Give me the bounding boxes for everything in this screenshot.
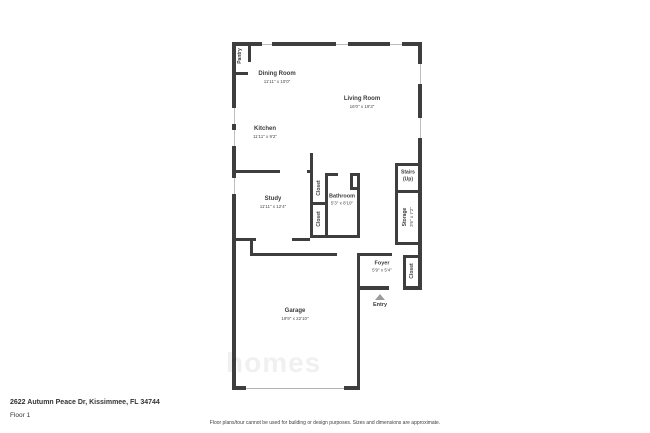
- wall-segment: [418, 138, 422, 290]
- wall-segment: [328, 173, 338, 176]
- floor-label: Floor 1: [10, 412, 30, 419]
- room-name: Pantry: [237, 48, 244, 64]
- room-label-storage: Storage 3'6" x 7'2": [402, 207, 414, 227]
- entry-label: Entry: [373, 302, 387, 308]
- room-name: Closet: [316, 211, 323, 226]
- room-name: Foyer: [372, 261, 392, 268]
- wall-segment: [232, 238, 256, 241]
- entry-arrow-icon: [375, 294, 385, 300]
- room-name: Study: [260, 196, 287, 204]
- window-marker: [234, 130, 235, 146]
- wall-segment: [348, 42, 390, 46]
- room-label-stairs: Stairs (Up): [401, 170, 415, 183]
- room-label-foyer: Foyer 5'9" x 5'4": [372, 261, 392, 274]
- room-label-dining-room: Dining Room 11'11" x 10'0": [258, 71, 295, 85]
- room-dims: 19'9" x 22'10": [281, 316, 308, 322]
- wall-segment: [395, 163, 398, 245]
- room-label-living-room: Living Room 16'0" x 19'3": [344, 96, 380, 110]
- room-label-study: Study 11'11" x 12'4": [260, 196, 287, 210]
- room-sub: (Up): [401, 176, 415, 183]
- wall-segment: [310, 235, 360, 238]
- window-marker: [390, 44, 402, 45]
- window-marker: [234, 108, 235, 124]
- wall-segment: [357, 286, 389, 290]
- wall-segment: [418, 84, 422, 118]
- wall-segment: [232, 386, 246, 390]
- window-marker: [420, 118, 421, 138]
- room-label-closet-foyer: Closet: [409, 263, 416, 278]
- room-dims: 16'0" x 19'3": [344, 104, 380, 110]
- room-dims: 11'11" x 9'2": [253, 134, 277, 140]
- wall-segment: [395, 163, 422, 166]
- wall-segment: [357, 253, 392, 256]
- room-name: Closet: [316, 180, 323, 195]
- room-name: Closet: [409, 263, 416, 278]
- wall-segment: [418, 42, 422, 64]
- room-label-garage: Garage 19'9" x 22'10": [281, 308, 308, 322]
- property-address: 2622 Autumn Peace Dr, Kissimmee, FL 3474…: [10, 399, 160, 406]
- garage-door-line: [246, 388, 344, 389]
- room-dims: 3'6" x 7'2": [408, 207, 414, 227]
- window-marker: [336, 44, 348, 45]
- disclaimer-text: Floor plans/tour cannot be used for buil…: [0, 420, 650, 426]
- wall-segment: [395, 242, 421, 245]
- window-marker: [234, 178, 235, 194]
- room-label-kitchen: Kitchen 11'11" x 9'2": [253, 126, 277, 140]
- room-label-closet-lower: Closet: [316, 211, 323, 226]
- wall-segment: [232, 170, 280, 173]
- wall-segment: [357, 253, 360, 390]
- wall-segment: [357, 173, 360, 235]
- wall-segment: [404, 286, 422, 290]
- room-dims: 5'9" x 5'4": [372, 268, 392, 274]
- wall-segment: [232, 42, 236, 108]
- room-name: Dining Room: [258, 71, 295, 79]
- room-name: Garage: [281, 308, 308, 316]
- room-name: Kitchen: [253, 126, 277, 134]
- wall-segment: [232, 146, 236, 178]
- room-dims: 5'3" x 8'10": [329, 201, 355, 207]
- wall-segment: [232, 72, 248, 75]
- wall-segment: [395, 190, 421, 193]
- room-name: Storage: [402, 207, 409, 227]
- wall-segment: [248, 42, 251, 62]
- wall-segment: [350, 187, 360, 190]
- floor-plan: Pantry Dining Room 11'11" x 10'0" Living…: [232, 42, 422, 390]
- wall-segment: [232, 42, 262, 46]
- wall-segment: [250, 253, 337, 256]
- room-name: Living Room: [344, 96, 380, 104]
- room-name: Stairs: [401, 170, 415, 177]
- room-dims: 11'11" x 10'0": [258, 79, 295, 85]
- wall-segment: [310, 202, 328, 205]
- window-marker: [262, 44, 272, 45]
- window-marker: [420, 64, 421, 84]
- wall-segment: [292, 238, 310, 241]
- room-name: Bathroom: [329, 194, 355, 201]
- room-dims: 11'11" x 12'4": [260, 204, 287, 210]
- wall-segment: [272, 42, 336, 46]
- room-label-pantry: Pantry: [237, 48, 244, 64]
- wall-segment: [403, 255, 406, 290]
- watermark: homes: [226, 347, 321, 379]
- room-label-closet-upper: Closet: [316, 180, 323, 195]
- room-label-bathroom: Bathroom 5'3" x 8'10": [329, 194, 355, 207]
- wall-segment: [350, 173, 353, 188]
